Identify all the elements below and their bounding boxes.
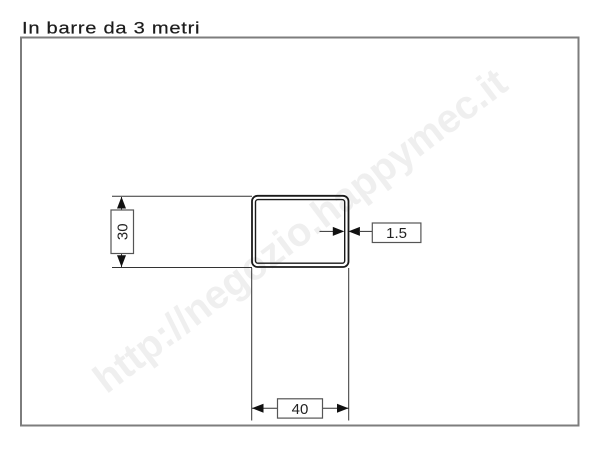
svg-text:1.5: 1.5 [386,225,407,242]
svg-text:In barre da 3 metri: In barre da 3 metri [22,18,200,37]
svg-text:30: 30 [115,223,132,240]
svg-text:40: 40 [292,401,309,418]
